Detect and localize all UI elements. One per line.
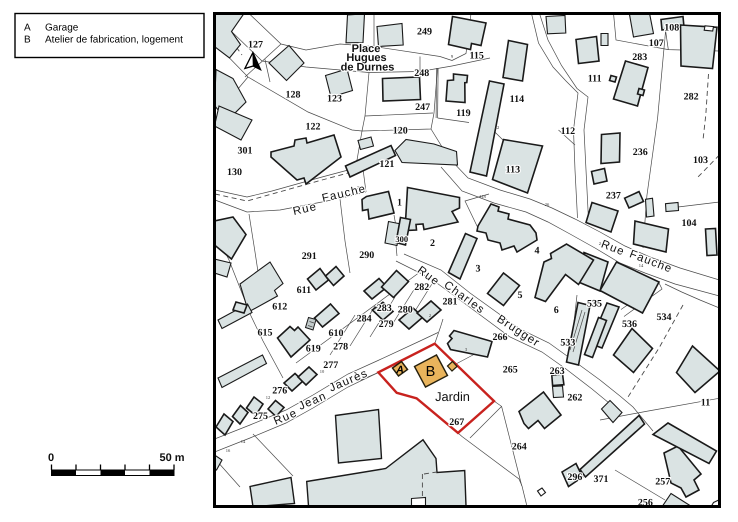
svg-text:291: 291 <box>302 251 317 262</box>
svg-text:237: 237 <box>606 191 621 202</box>
svg-text:111: 111 <box>588 73 602 84</box>
svg-text:279: 279 <box>379 319 394 330</box>
svg-text:122: 122 <box>306 122 321 133</box>
svg-text:615: 615 <box>258 328 273 339</box>
svg-text:277: 277 <box>323 360 338 371</box>
svg-text:3: 3 <box>476 264 481 275</box>
svg-text:282: 282 <box>414 282 429 293</box>
svg-text:533: 533 <box>560 337 575 348</box>
svg-text:22: 22 <box>495 125 500 130</box>
svg-text:282: 282 <box>684 91 699 102</box>
svg-text:130: 130 <box>227 167 242 178</box>
svg-text:266: 266 <box>493 332 508 343</box>
svg-text:267: 267 <box>449 417 464 428</box>
svg-text:249: 249 <box>417 27 432 38</box>
svg-text:4: 4 <box>535 246 540 257</box>
svg-text:de Durnes: de Durnes <box>341 62 395 74</box>
svg-text:263: 263 <box>550 366 565 377</box>
svg-text:262: 262 <box>567 393 582 404</box>
svg-text:5: 5 <box>518 290 523 301</box>
svg-text:283: 283 <box>632 52 647 63</box>
svg-text:121: 121 <box>379 159 394 170</box>
svg-text:B: B <box>426 364 436 380</box>
svg-text:11: 11 <box>701 398 710 409</box>
svg-text:612: 612 <box>272 302 287 313</box>
svg-text:1: 1 <box>397 198 402 209</box>
svg-text:123: 123 <box>327 94 342 105</box>
svg-text:290: 290 <box>359 250 374 261</box>
svg-text:278: 278 <box>333 341 348 352</box>
svg-text:6: 6 <box>554 305 559 316</box>
svg-text:535: 535 <box>587 299 602 310</box>
svg-text:119: 119 <box>456 108 470 119</box>
svg-text:236: 236 <box>633 147 648 158</box>
svg-text:0: 0 <box>48 452 54 464</box>
svg-text:26: 26 <box>545 202 550 207</box>
svg-text:B: B <box>24 35 31 46</box>
svg-text:118: 118 <box>479 194 486 199</box>
svg-text:16: 16 <box>226 448 231 453</box>
svg-text:14: 14 <box>241 439 246 444</box>
svg-text:113: 113 <box>506 165 520 176</box>
svg-text:128: 128 <box>286 90 301 101</box>
svg-text:247: 247 <box>415 102 430 113</box>
svg-text:534: 534 <box>657 312 672 323</box>
svg-text:257: 257 <box>655 477 670 488</box>
svg-text:12: 12 <box>266 395 271 400</box>
svg-text:248: 248 <box>414 68 429 79</box>
svg-text:280: 280 <box>398 305 413 316</box>
svg-text:50 m: 50 m <box>159 452 184 464</box>
svg-text:371: 371 <box>594 474 609 485</box>
svg-text:283: 283 <box>377 303 392 314</box>
svg-text:127: 127 <box>248 40 263 51</box>
svg-text:108: 108 <box>664 22 679 33</box>
svg-text:610: 610 <box>329 328 344 339</box>
svg-text:2: 2 <box>429 313 431 318</box>
svg-text:104: 104 <box>682 218 697 229</box>
svg-text:265: 265 <box>503 365 518 376</box>
svg-text:114: 114 <box>510 94 524 105</box>
svg-text:120: 120 <box>393 126 408 137</box>
svg-text:300: 300 <box>395 234 408 244</box>
svg-text:Atelier de fabrication, logeme: Atelier de fabrication, logement <box>45 35 183 46</box>
svg-text:284: 284 <box>357 314 372 325</box>
svg-text:275: 275 <box>253 411 268 422</box>
svg-text:A: A <box>395 364 404 376</box>
svg-text:264: 264 <box>512 442 527 453</box>
svg-text:619: 619 <box>306 344 321 355</box>
svg-text:276: 276 <box>272 386 287 397</box>
svg-text:A: A <box>24 23 31 34</box>
svg-text:10: 10 <box>320 369 325 374</box>
svg-text:Jardin: Jardin <box>435 389 470 404</box>
svg-text:2: 2 <box>430 238 435 249</box>
svg-text:107: 107 <box>649 38 664 49</box>
svg-text:536: 536 <box>622 319 637 330</box>
svg-text:112: 112 <box>561 126 575 137</box>
svg-text:103: 103 <box>693 155 708 166</box>
svg-text:296: 296 <box>567 472 582 483</box>
svg-text:115: 115 <box>469 51 483 62</box>
svg-text:301: 301 <box>238 146 253 157</box>
svg-text:Garage: Garage <box>45 23 79 34</box>
svg-text:611: 611 <box>297 285 311 296</box>
